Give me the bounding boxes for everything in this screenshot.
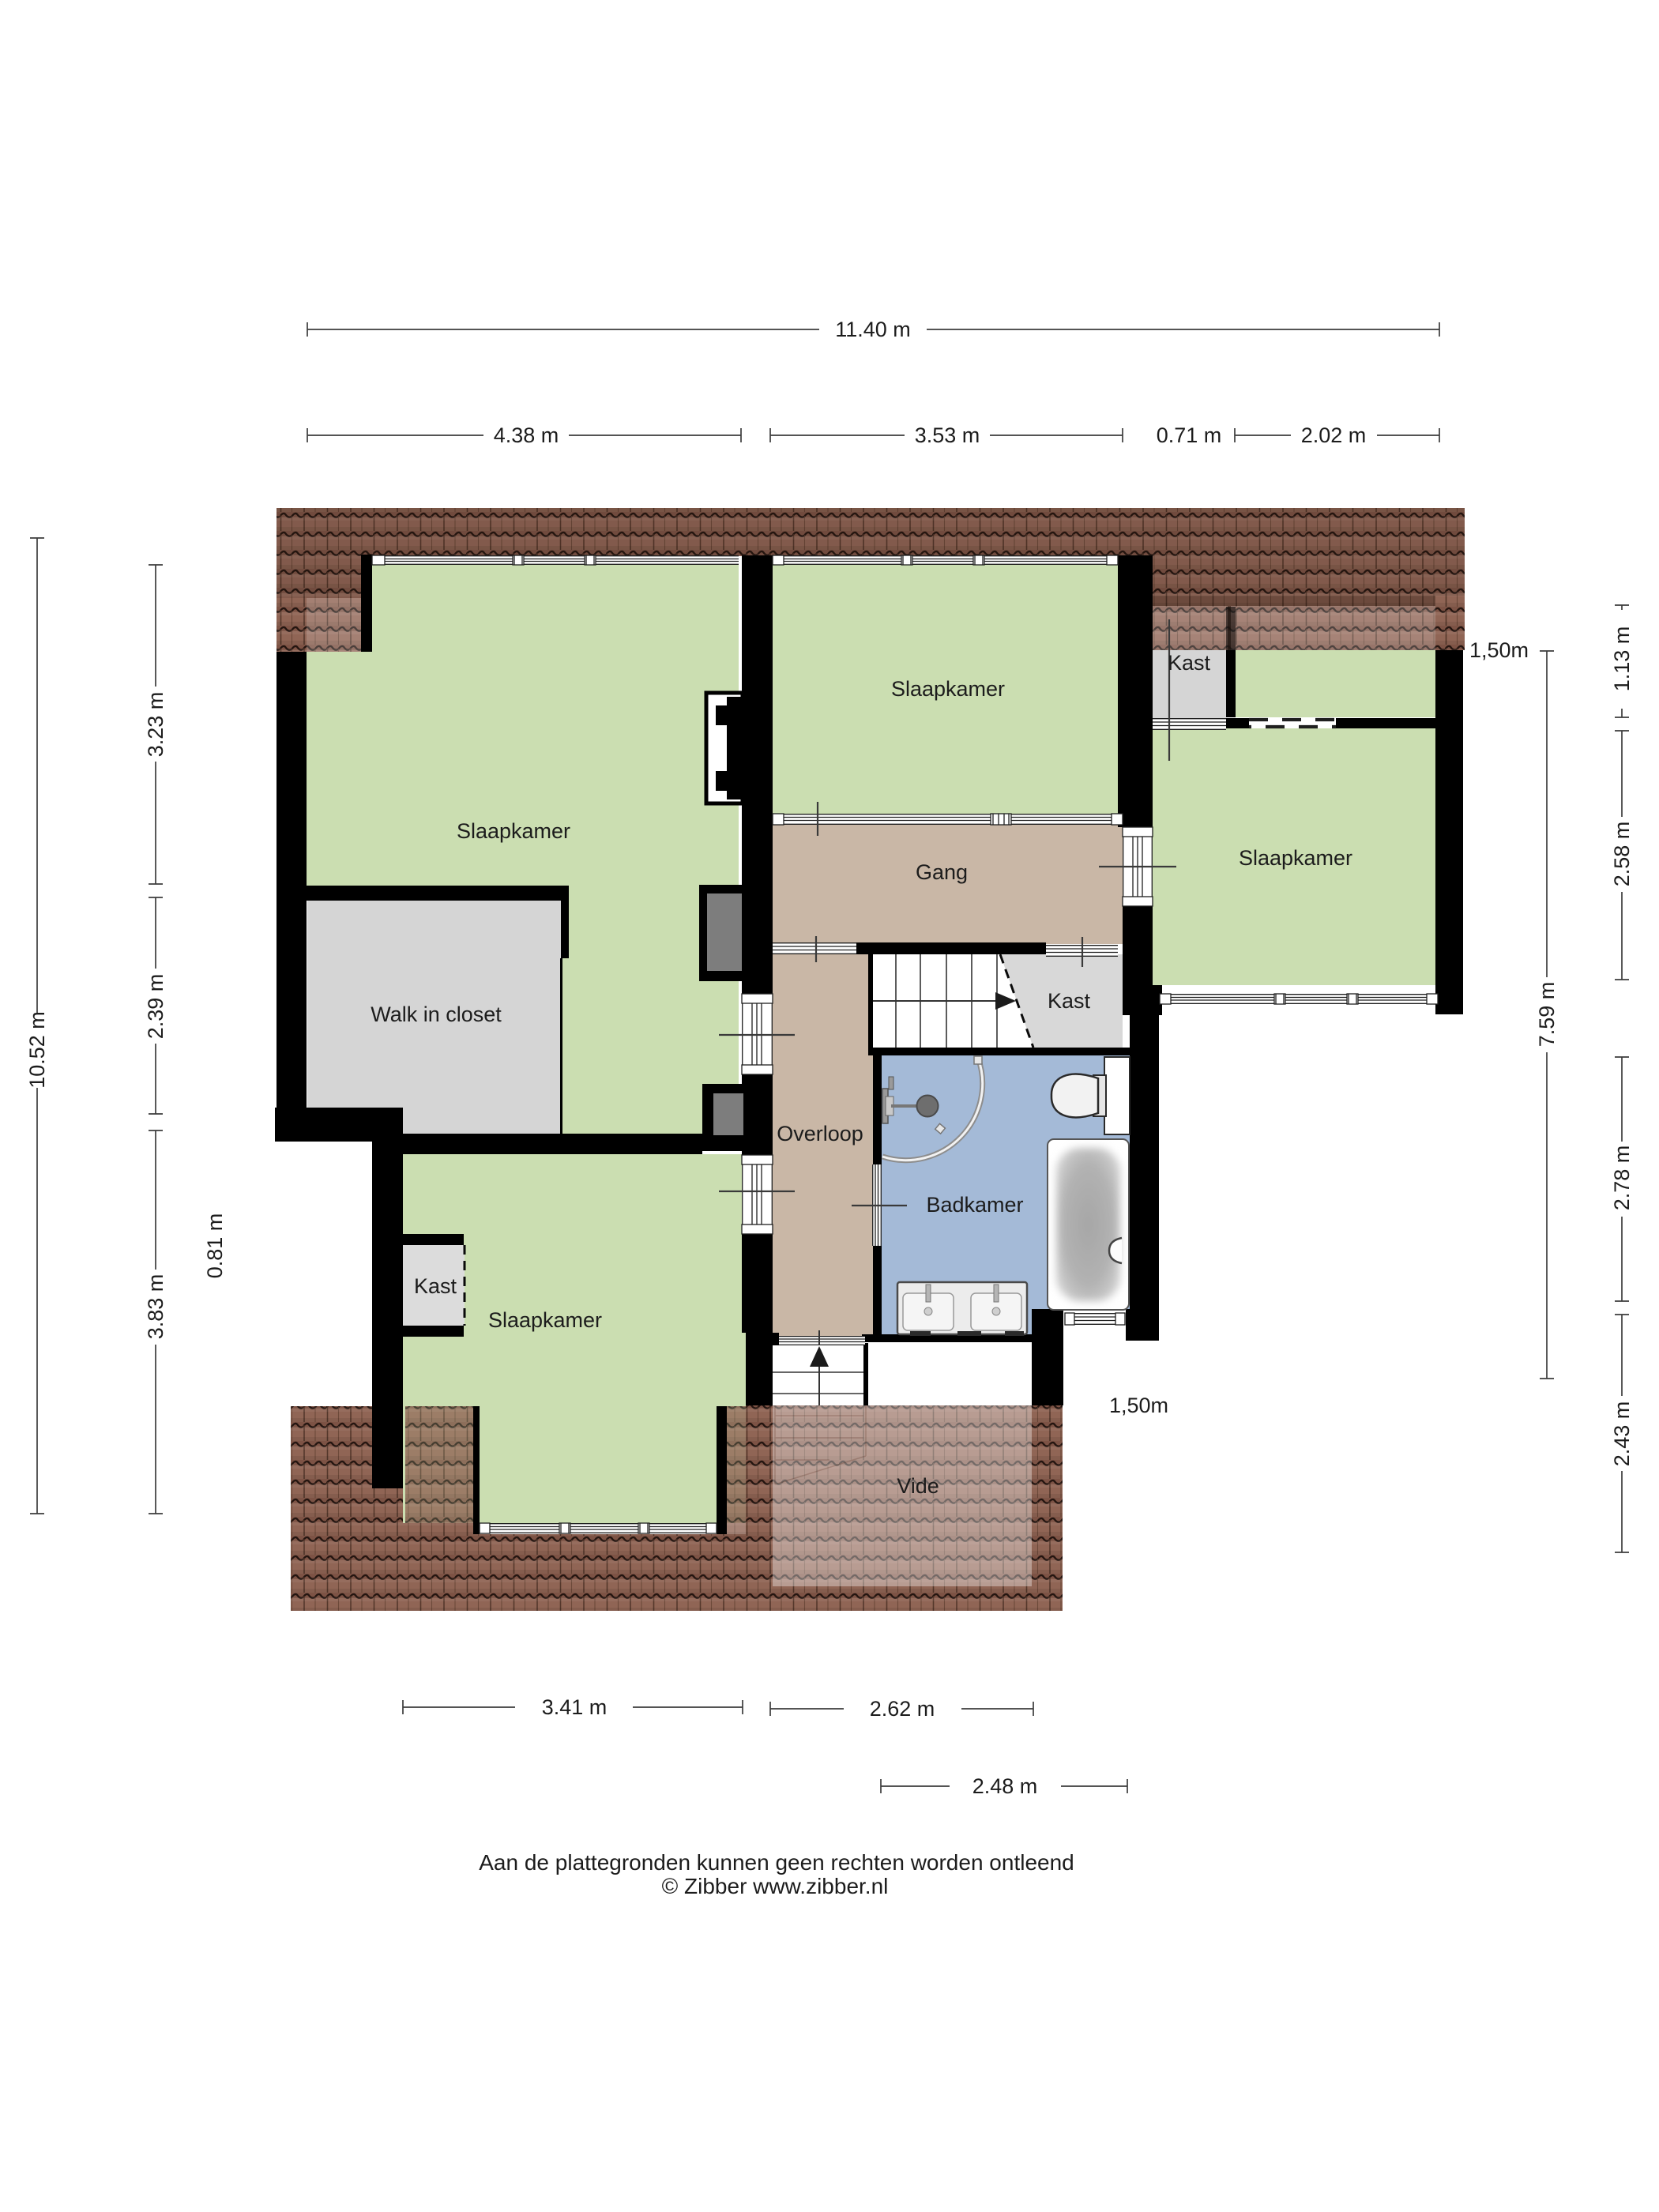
svg-text:3.23 m: 3.23 m	[144, 692, 167, 758]
svg-text:Kast: Kast	[1048, 989, 1091, 1013]
svg-text:10.52 m: 10.52 m	[25, 1011, 49, 1089]
svg-text:Slaapkamer: Slaapkamer	[1239, 846, 1352, 870]
svg-text:2.48 m: 2.48 m	[972, 1774, 1038, 1798]
svg-text:7.59 m: 7.59 m	[1535, 982, 1559, 1048]
svg-text:Gang: Gang	[916, 860, 968, 884]
svg-text:Slaapkamer: Slaapkamer	[457, 819, 570, 843]
svg-text:2.78 m: 2.78 m	[1610, 1145, 1634, 1211]
svg-text:2.39 m: 2.39 m	[144, 974, 167, 1040]
svg-text:11.40 m: 11.40 m	[835, 318, 911, 341]
svg-text:3.53 m: 3.53 m	[915, 423, 980, 447]
svg-text:Walk in closet: Walk in closet	[371, 1003, 502, 1026]
svg-text:2.58 m: 2.58 m	[1610, 822, 1634, 887]
svg-text:1,50m: 1,50m	[1469, 638, 1529, 662]
svg-text:2.62 m: 2.62 m	[870, 1697, 935, 1721]
svg-text:2.43 m: 2.43 m	[1610, 1401, 1634, 1467]
svg-text:Overloop: Overloop	[777, 1122, 863, 1145]
svg-text:0.81 m: 0.81 m	[203, 1213, 227, 1279]
svg-text:Kast: Kast	[414, 1274, 457, 1298]
svg-text:2.02 m: 2.02 m	[1301, 423, 1367, 447]
svg-text:Vide: Vide	[897, 1474, 939, 1498]
svg-text:1.13 m: 1.13 m	[1610, 626, 1634, 692]
svg-text:Slaapkamer: Slaapkamer	[891, 677, 1005, 701]
svg-text:Aan de plattegronden kunnen ge: Aan de plattegronden kunnen geen rechten…	[479, 1850, 1074, 1875]
svg-text:1,50m: 1,50m	[1109, 1394, 1168, 1417]
svg-text:0.71 m: 0.71 m	[1157, 423, 1222, 447]
svg-text:3.83 m: 3.83 m	[144, 1274, 167, 1340]
svg-text:3.41 m: 3.41 m	[542, 1695, 608, 1719]
svg-text:Kast: Kast	[1168, 651, 1211, 675]
svg-text:Slaapkamer: Slaapkamer	[488, 1308, 602, 1332]
svg-text:4.38 m: 4.38 m	[494, 423, 559, 447]
svg-text:Badkamer: Badkamer	[926, 1193, 1023, 1217]
svg-text:© Zibber www.zibber.nl: © Zibber www.zibber.nl	[662, 1874, 889, 1898]
